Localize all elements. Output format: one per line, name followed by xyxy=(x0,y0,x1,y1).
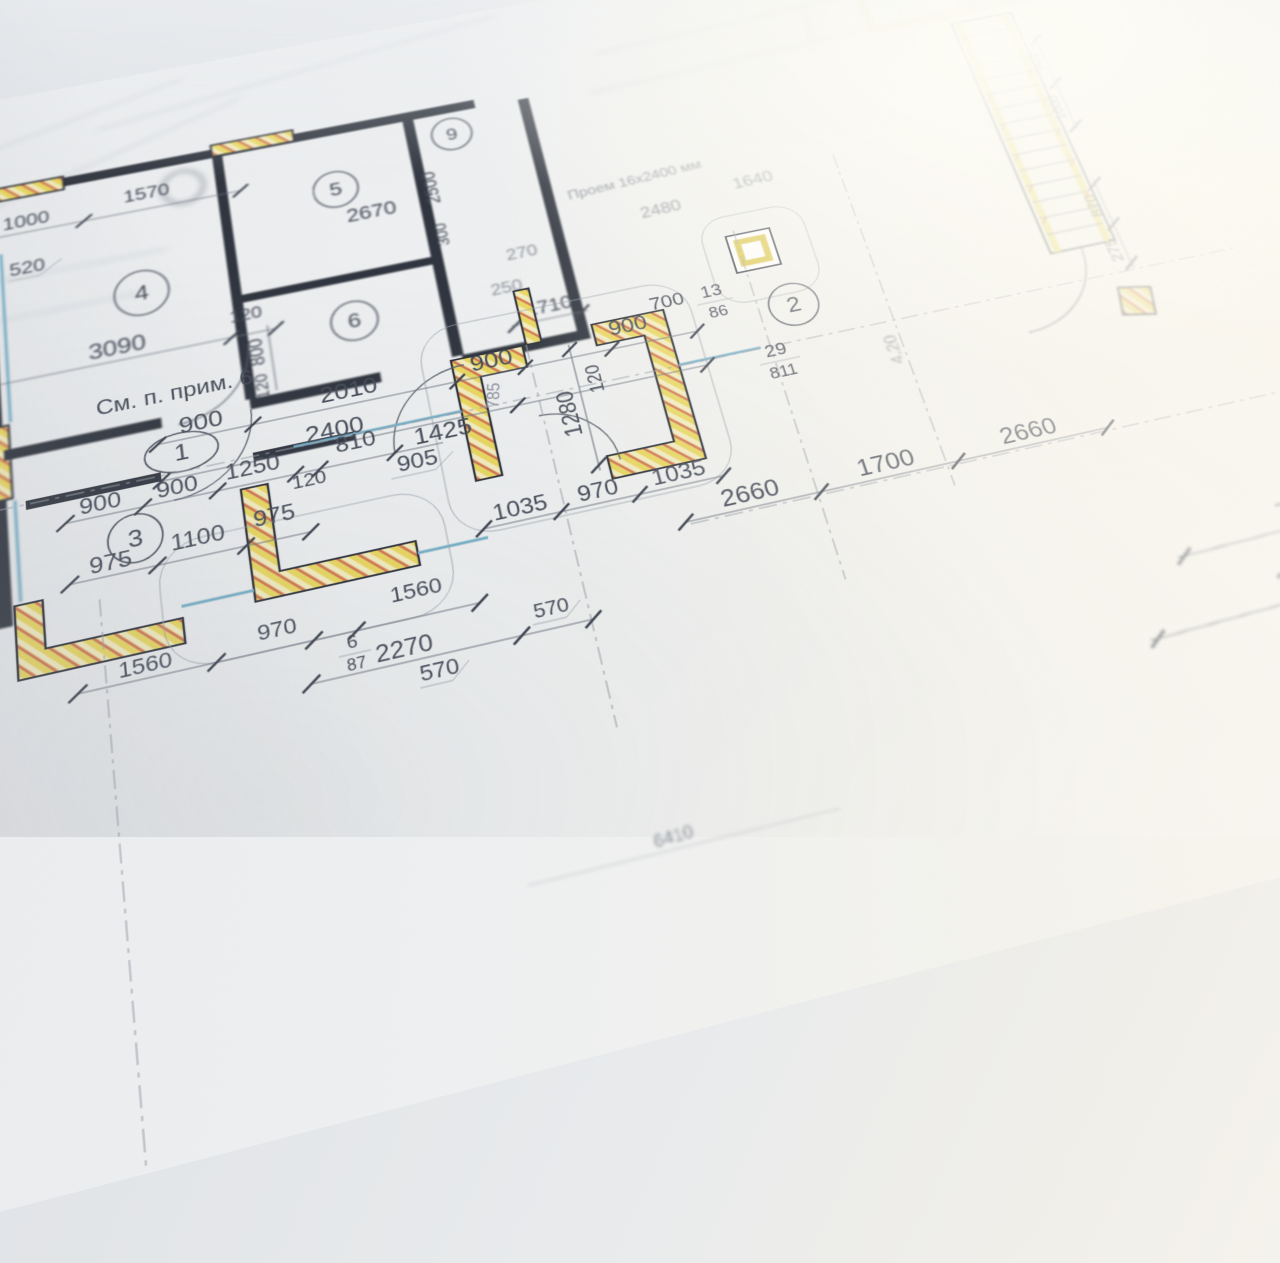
level-fraction: 29 811 xyxy=(754,336,807,384)
door-arc xyxy=(1000,246,1111,333)
small-column xyxy=(1118,287,1156,315)
svg-text:29: 29 xyxy=(762,338,789,361)
dim-label: 6410 xyxy=(651,820,696,851)
dim-label: 520 xyxy=(9,255,46,281)
svg-text:6: 6 xyxy=(345,632,359,653)
column xyxy=(726,228,782,273)
dim-label: 1570 xyxy=(123,180,171,207)
dim-label: 1100 xyxy=(169,521,226,557)
vestibule-wall-right xyxy=(574,310,706,479)
room-number: 9 xyxy=(444,125,459,144)
dim-label: 1280 xyxy=(552,389,589,439)
window-sill xyxy=(679,348,761,365)
window-sill xyxy=(181,590,254,606)
dim-label: 570 xyxy=(531,593,571,623)
dim-label: 270 xyxy=(504,241,539,264)
dim-label: 870 xyxy=(1081,193,1108,219)
room-number: 2 xyxy=(783,291,804,317)
dim-label: 2010 xyxy=(318,372,379,408)
dim-label: 1560 xyxy=(388,573,444,608)
partition xyxy=(402,120,463,357)
room-number: 6 xyxy=(346,309,363,332)
dim-label: 120 xyxy=(291,466,328,493)
dim-label: 905 xyxy=(395,446,440,477)
room-number: 4 xyxy=(133,280,150,306)
svg-text:13: 13 xyxy=(698,280,724,302)
staircase-wing: 900 1000 870 275 4.20 xyxy=(779,9,1170,371)
dim-label: 975 xyxy=(88,546,133,580)
partition xyxy=(241,257,433,303)
window-glazing xyxy=(15,501,21,602)
dim-label: 2660 xyxy=(717,473,782,512)
svg-text:86: 86 xyxy=(707,303,731,322)
note-text: См. п. прим. 6 xyxy=(95,366,254,420)
dim-label: 1000 xyxy=(2,207,50,234)
dim-label: 1000 xyxy=(1043,94,1070,121)
dim-label: 800 xyxy=(243,336,269,368)
insulated-wall-segment xyxy=(211,130,295,157)
dim-label: 120 xyxy=(580,362,609,394)
dim-label: 970 xyxy=(256,613,299,646)
dim-label: 1250 xyxy=(224,451,282,485)
dim-label: 120 xyxy=(252,372,275,401)
dim-label: 1700 xyxy=(853,443,918,481)
insulated-wall-segment xyxy=(0,176,64,207)
level-fraction: 6 87 xyxy=(336,629,375,676)
dim-label: 1640 xyxy=(730,167,776,192)
room-number: 1 xyxy=(173,438,191,467)
insulated-pier xyxy=(0,425,13,505)
dim-label: 900 xyxy=(155,472,199,504)
dim-label: 2660 xyxy=(995,412,1060,449)
dim-label: 3090 xyxy=(87,329,146,364)
window-sill xyxy=(418,537,488,553)
dim-label: 7560 xyxy=(1271,487,1280,524)
dim-label: 2670 xyxy=(345,198,398,227)
dim-label: 300 xyxy=(431,221,454,247)
dim-label: 970 xyxy=(575,475,621,507)
blueprint-sheet: 4 5 6 9 1000 1570 520 3090 120 800 120 2… xyxy=(0,0,1280,1263)
floor-plan-drawing: 4 5 6 9 1000 1570 520 3090 120 800 120 2… xyxy=(0,0,1280,1263)
dim-label: 275 xyxy=(1101,237,1129,263)
room-number: 5 xyxy=(328,179,344,200)
dim-label: 2480 xyxy=(638,196,684,222)
svg-text:811: 811 xyxy=(768,361,801,383)
dim-label: 4.20 xyxy=(880,333,908,365)
dim-label: 900 xyxy=(177,404,224,438)
dim-label: 700 xyxy=(647,288,687,315)
central-rooms-zone: 1 3 См. п. прим. 6 2 xyxy=(0,70,1280,1262)
adjacent-plan-walls xyxy=(846,0,1194,30)
level-fraction: 13 86 xyxy=(692,278,739,323)
opening-note: Проем 16х2400 мм xyxy=(566,157,704,203)
dim-label: 25760 xyxy=(1271,549,1280,597)
dim-label: 785 xyxy=(484,382,504,408)
dim-label: 1425 xyxy=(412,412,475,449)
